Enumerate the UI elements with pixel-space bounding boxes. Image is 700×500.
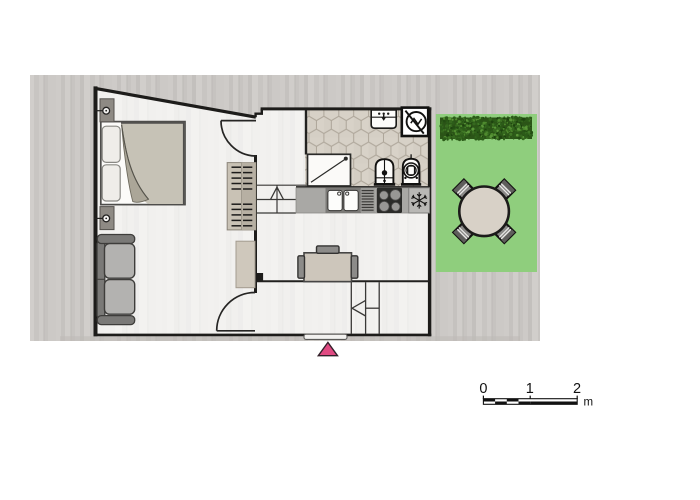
svg-text:1: 1 (526, 381, 534, 397)
svg-text:0: 0 (479, 381, 487, 397)
svg-text:2: 2 (573, 381, 581, 397)
svg-text:m: m (584, 396, 594, 408)
